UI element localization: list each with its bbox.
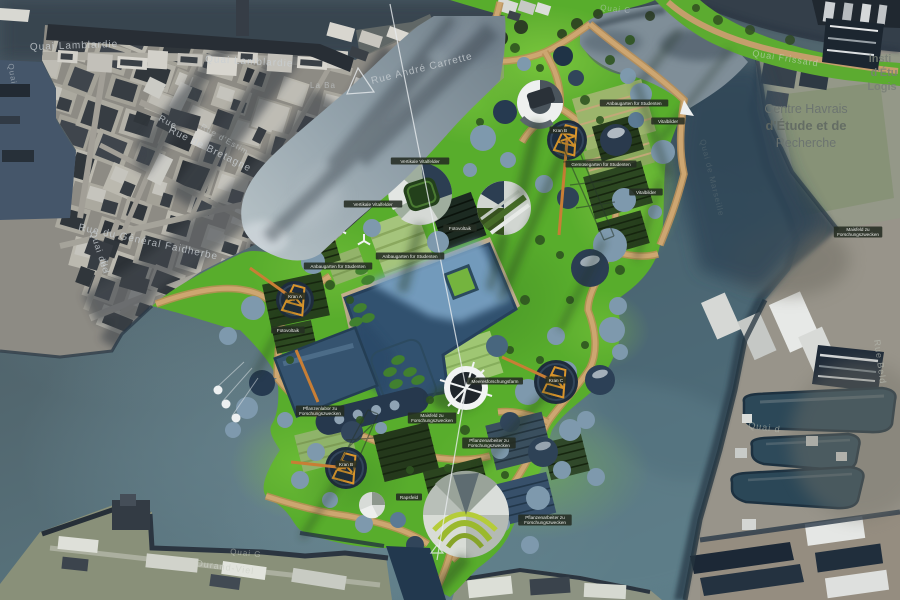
svg-text:Anbaugarten für Studenten: Anbaugarten für Studenten bbox=[382, 254, 438, 259]
svg-text:Rapsfeld: Rapsfeld bbox=[400, 495, 419, 500]
svg-text:Logis: Logis bbox=[867, 81, 896, 93]
svg-text:Forschungszwecken: Forschungszwecken bbox=[837, 232, 879, 237]
svg-text:Vitalbilder: Vitalbilder bbox=[636, 190, 657, 195]
svg-text:Fotovoltaik: Fotovoltaik bbox=[277, 328, 300, 333]
svg-text:Vitalbilder: Vitalbilder bbox=[658, 119, 679, 124]
svg-text:Insti: Insti bbox=[869, 53, 892, 65]
svg-text:Anbaugarten für Studenten: Anbaugarten für Studenten bbox=[310, 264, 366, 269]
svg-text:Forschungszwecken: Forschungszwecken bbox=[299, 411, 341, 416]
svg-text:d'Étude et de: d'Étude et de bbox=[765, 118, 846, 133]
svg-text:Forschungszwecken: Forschungszwecken bbox=[524, 520, 566, 525]
svg-text:Anbaugarten für Studenten: Anbaugarten für Studenten bbox=[606, 101, 662, 106]
svg-text:Kran B: Kran B bbox=[339, 462, 353, 467]
svg-text:Kran B: Kran B bbox=[553, 128, 567, 133]
svg-text:Meeresforschungsfarm: Meeresforschungsfarm bbox=[472, 379, 519, 384]
svg-text:Vertikale Vitalfelder: Vertikale Vitalfelder bbox=[353, 202, 393, 207]
svg-text:d'Étu: d'Étu bbox=[870, 66, 897, 79]
svg-text:Forschungszwecken: Forschungszwecken bbox=[411, 418, 453, 423]
svg-text:Kran C: Kran C bbox=[549, 378, 564, 383]
svg-text:Vertikale Vitalfelder: Vertikale Vitalfelder bbox=[400, 159, 440, 164]
svg-text:Forschungszwecken: Forschungszwecken bbox=[468, 443, 510, 448]
svg-text:Centre Havrais: Centre Havrais bbox=[764, 102, 847, 116]
svg-text:Gemüsegarten für Studenten: Gemüsegarten für Studenten bbox=[571, 162, 631, 167]
svg-text:Recherche: Recherche bbox=[776, 136, 836, 150]
svg-text:La Ba: La Ba bbox=[310, 81, 336, 90]
svg-text:Kran A: Kran A bbox=[288, 294, 303, 299]
svg-text:Fotovoltaik: Fotovoltaik bbox=[449, 226, 472, 231]
